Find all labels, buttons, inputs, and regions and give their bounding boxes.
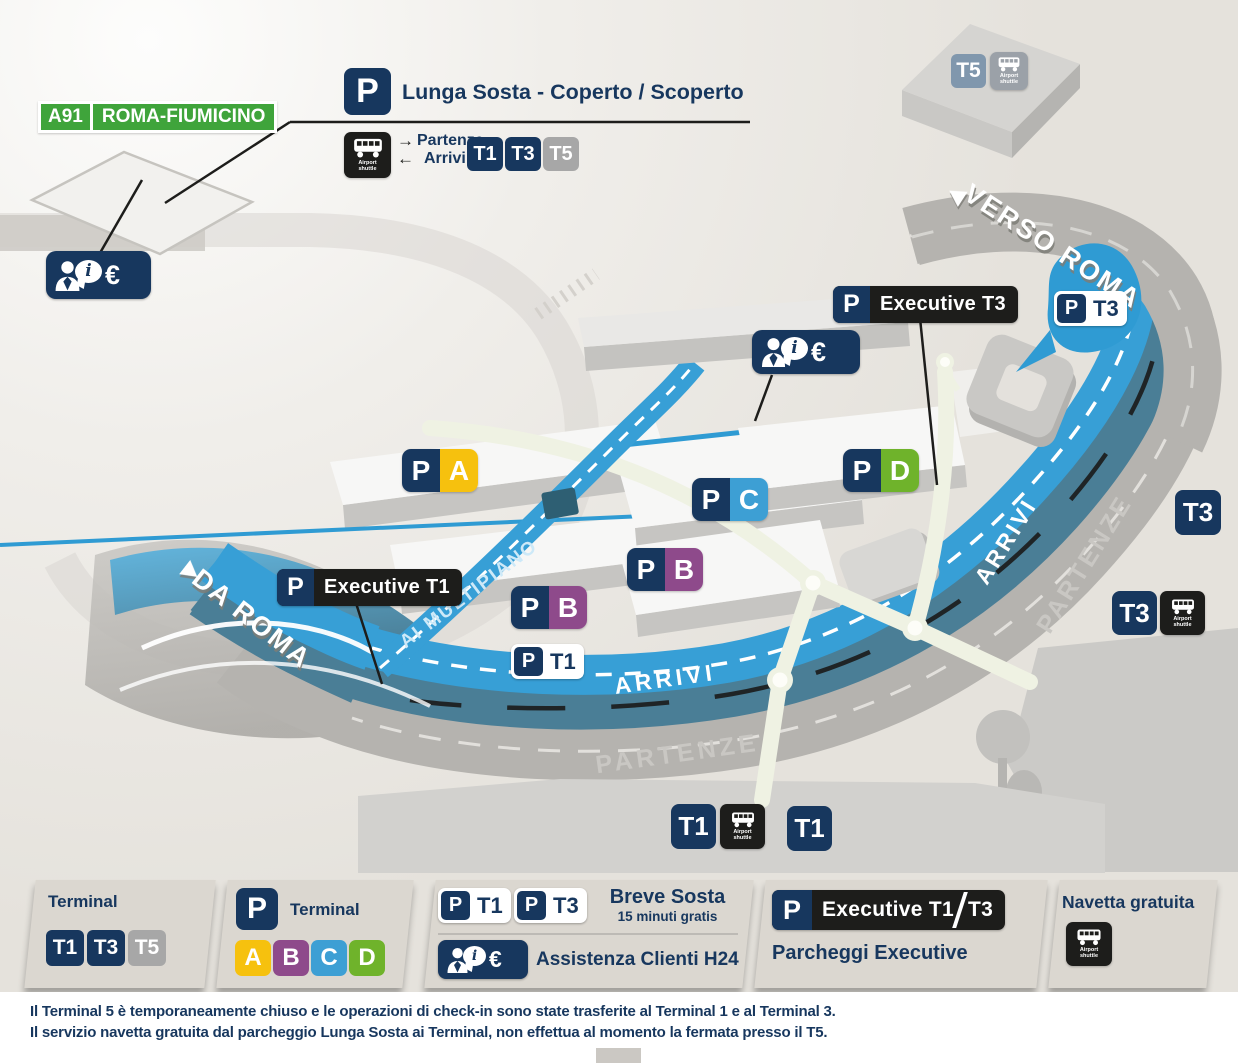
map-artwork xyxy=(0,0,1238,992)
parking-icon-lunga-sosta: P xyxy=(344,68,391,115)
legend-divider xyxy=(438,933,738,935)
parking-p-icon: P xyxy=(772,890,812,930)
legend-pt1-badge: P T1 xyxy=(438,888,511,923)
parking-p-icon: P xyxy=(517,891,546,920)
legend-top-t5-badge: T5 xyxy=(543,137,579,171)
parking-p-icon: P xyxy=(514,647,543,676)
info-assistance-topleft: i € xyxy=(46,251,151,299)
parking-letter-c: C xyxy=(730,478,768,521)
t5-building-badge: T5 xyxy=(951,54,986,88)
legend-letter-c: C xyxy=(311,940,347,976)
parking-p-icon: P xyxy=(441,891,470,920)
parking-t1-badge: P T1 xyxy=(511,644,584,679)
breve-sosta-subtitle: 15 minuti gratis xyxy=(595,909,740,924)
map-canvas: A91 ROMA-FIUMICINO P Lunga Sosta - Coper… xyxy=(0,0,1238,992)
legend-t5-badge: T5 xyxy=(128,930,166,966)
shuttle-caption: Airport shuttle xyxy=(992,74,1026,86)
a91-highway-badge: A91 ROMA-FIUMICINO xyxy=(38,101,277,133)
parking-p-icon: P xyxy=(511,586,549,629)
euro-icon: € xyxy=(811,337,826,368)
legend-shuttle-icon: Airport shuttle xyxy=(1066,922,1112,966)
parking-p-icon: P xyxy=(402,449,440,492)
footer: Il Terminal 5 è temporaneamente chiuso e… xyxy=(0,992,1238,1063)
parking-p-icon: P xyxy=(627,548,665,591)
executive-t3-text: T3 xyxy=(962,890,1005,930)
parking-letter-d: D xyxy=(881,449,919,492)
navetta-gratuita-title: Navetta gratuita xyxy=(1062,892,1194,913)
t1-text: T1 xyxy=(474,893,506,919)
railway-hatch xyxy=(538,274,596,314)
euro-icon: € xyxy=(105,260,120,291)
executive-t1-text: Executive T1 xyxy=(314,569,462,606)
parking-p-icon: P xyxy=(833,286,870,323)
legend-terminal-title: Terminal xyxy=(48,892,118,912)
legend-letter-b: B xyxy=(273,940,309,976)
legend-terminal-badges: T1 T3 T5 xyxy=(46,930,169,966)
shuttle-caption: Airport shuttle xyxy=(351,161,385,173)
arrow-right-icon: → xyxy=(397,131,414,151)
legend-t1-badge: T1 xyxy=(46,930,84,966)
parking-a-badge: PA xyxy=(402,449,478,492)
shuttle-caption: Airport shuttle xyxy=(1166,617,1200,629)
legend-p-icon: P xyxy=(236,888,278,930)
assistenza-label: Assistenza Clienti H24 xyxy=(536,949,739,971)
info-assistance-center: i € xyxy=(752,330,860,374)
parking-t3-badge: P T3 xyxy=(1054,291,1127,326)
executive-t3-text: Executive T3 xyxy=(870,286,1018,323)
info-i: i xyxy=(472,948,477,964)
t1-badge-east: T1 xyxy=(787,806,832,851)
legend-section-terminal: Terminal T1 T3 T5 xyxy=(24,880,215,988)
airport-shuttle-icon: Airport shuttle xyxy=(344,132,391,178)
euro-icon: € xyxy=(489,946,502,973)
legend-section-p-terminal: P Terminal A B C D xyxy=(216,880,413,988)
parking-letter-b: B xyxy=(549,586,587,629)
t1-badge-west: T1 xyxy=(671,804,716,849)
legend-pt3-badge: P T3 xyxy=(514,888,587,923)
legend-letter-d: D xyxy=(349,940,385,976)
parking-c-badge: PC xyxy=(692,478,768,521)
info-i: i xyxy=(791,338,797,358)
parking-p-icon: P xyxy=(277,569,314,606)
legend-info-icon: i € xyxy=(438,940,528,979)
shuttle-caption: Airport shuttle xyxy=(1072,948,1106,960)
parking-b-badge-west: PB xyxy=(511,586,587,629)
info-bubble-icon: i xyxy=(781,337,808,360)
t1-shuttle-icon: Airport shuttle xyxy=(720,804,765,849)
shuttle-caption: Airport shuttle xyxy=(726,830,760,842)
parking-letter-b: B xyxy=(665,548,703,591)
bus-icon xyxy=(351,137,385,161)
t3-text: T3 xyxy=(550,893,582,919)
legend-parking-letters: A B C D xyxy=(235,940,387,976)
parking-b-badge-east: PB xyxy=(627,548,703,591)
parking-d-badge: PD xyxy=(843,449,919,492)
t3-text: T3 xyxy=(1090,296,1122,322)
arrow-left-icon: ← xyxy=(397,149,414,169)
parking-letter-a: A xyxy=(440,449,478,492)
executive-t1-label: P Executive T1 xyxy=(277,569,462,606)
t5-shuttle-icon: Airport shuttle xyxy=(990,52,1028,90)
executive-t3-label: P Executive T3 xyxy=(833,286,1018,323)
legend-executive-badge: P Executive T1 T3 xyxy=(772,890,1005,930)
footer-artifact xyxy=(596,1048,641,1063)
legend-section-executive: P Executive T1 T3 Parcheggi Executive xyxy=(754,880,1047,988)
t3-badge-upper: T3 xyxy=(1175,490,1221,535)
parking-p-icon: P xyxy=(1057,294,1086,323)
parking-p-icon: P xyxy=(692,478,730,521)
legend-t3-badge: T3 xyxy=(87,930,125,966)
t3-badge-lower: T3 xyxy=(1112,591,1157,635)
tree-lollipop xyxy=(976,710,1030,764)
legend-letter-a: A xyxy=(235,940,271,976)
legend-section-breve-sosta: P T1 P T3 Breve Sosta 15 minuti gratis i… xyxy=(424,880,753,988)
lunga-sosta-title: Lunga Sosta - Coperto / Scoperto xyxy=(402,80,744,105)
info-bubble-icon: i xyxy=(75,260,102,283)
a91-code: A91 xyxy=(41,104,93,130)
a91-name: ROMA-FIUMICINO xyxy=(93,104,275,130)
airport-parking-map: A91 ROMA-FIUMICINO P Lunga Sosta - Coper… xyxy=(0,0,1238,1063)
legend-section-navetta: Navetta gratuita Airport shuttle xyxy=(1048,880,1217,988)
t3-shuttle-icon: Airport shuttle xyxy=(1160,591,1205,635)
legend-p-terminal-title: Terminal xyxy=(290,900,360,920)
breve-sosta-title: Breve Sosta xyxy=(595,886,740,909)
info-bubble-icon: i xyxy=(463,946,486,966)
t1-text: T1 xyxy=(547,649,579,675)
shuttle-arrivi-label: Arrivi xyxy=(424,150,466,168)
legend-top-t3-badge: T3 xyxy=(505,137,541,171)
parking-p-icon: P xyxy=(843,449,881,492)
executive-t1-text: Executive T1 xyxy=(812,890,958,930)
legend-top-t1-badge: T1 xyxy=(467,137,503,171)
footer-note-line2: Il servizio navetta gratuita dal parcheg… xyxy=(30,1024,827,1041)
info-i: i xyxy=(85,261,91,281)
footer-note-line1: Il Terminal 5 è temporaneamente chiuso e… xyxy=(30,1003,836,1020)
parcheggi-executive-label: Parcheggi Executive xyxy=(772,942,968,965)
